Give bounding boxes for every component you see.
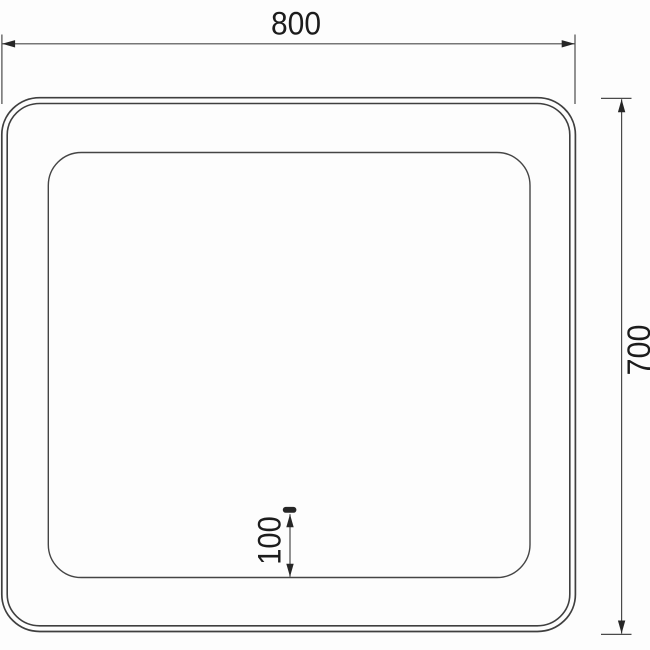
svg-text:700: 700 xyxy=(621,325,650,376)
svg-text:100: 100 xyxy=(251,516,287,565)
svg-text:800: 800 xyxy=(271,6,321,42)
